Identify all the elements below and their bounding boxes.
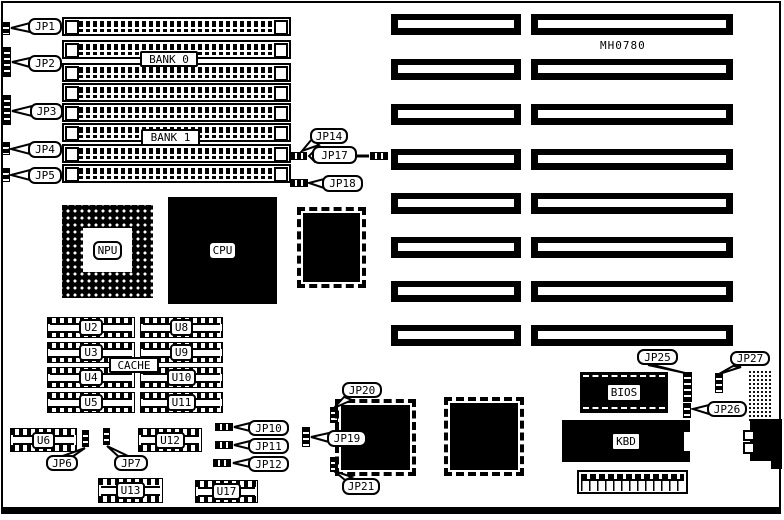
bios-label: BIOS	[606, 383, 643, 402]
expansion-slot	[531, 325, 733, 346]
connector-pin	[743, 430, 755, 441]
qfp-chip	[450, 403, 518, 470]
jp6-jumper-block	[82, 430, 89, 447]
chip-u2: U2	[47, 317, 135, 338]
npu-socket-window: NPU	[83, 228, 132, 272]
jp5-jumper-block	[2, 168, 10, 182]
jp4-jumper-block	[2, 142, 10, 155]
chip-u6: U6	[10, 428, 77, 452]
jp5-label: JP5	[28, 167, 62, 184]
expansion-slot	[391, 149, 521, 170]
expansion-slot	[531, 237, 733, 258]
jp25-label: JP25	[637, 349, 678, 365]
jp10-jumper-block	[215, 423, 233, 431]
chip-u8: U8	[140, 317, 223, 338]
npu-label: NPU	[93, 241, 123, 260]
cache-label: CACHE	[109, 357, 159, 373]
jp17-label: JP17	[312, 146, 357, 164]
jp1-jumper-block	[2, 22, 10, 35]
jp10-label: JP10	[248, 420, 289, 436]
jp17-jumper-block	[370, 152, 388, 160]
simm-socket	[62, 144, 291, 163]
bios-chip: BIOS	[580, 372, 668, 413]
jp26-jumper-block	[683, 403, 691, 418]
expansion-slot	[531, 149, 733, 170]
kbd-controller-chip: KBD	[562, 420, 690, 462]
jp3-label: JP3	[30, 103, 63, 120]
chip-u5: U5	[47, 392, 135, 413]
jp19-label: JP19	[327, 430, 367, 447]
jp12-jumper-block	[213, 459, 231, 467]
jp20-label: JP20	[342, 382, 382, 398]
bank0-label: BANK 0	[140, 51, 198, 67]
model-number: MH0780	[600, 39, 660, 52]
jp2-jumper-block	[3, 47, 11, 77]
expansion-slot	[391, 14, 521, 35]
jp14-jp17-jumper-block	[290, 152, 307, 160]
jp19-jumper-block	[302, 427, 310, 447]
jp3-jumper-block	[3, 95, 11, 125]
chip-u12: U12	[138, 428, 202, 452]
jp25-jumper-block	[683, 372, 692, 402]
jp27-label: JP27	[730, 351, 770, 366]
simm-socket	[62, 103, 291, 122]
jp18-label: JP18	[322, 175, 363, 192]
jp11-label: JP11	[248, 438, 289, 454]
expansion-slot	[531, 104, 733, 125]
expansion-slot	[531, 59, 733, 80]
expansion-slot	[391, 281, 521, 302]
simm-socket	[62, 83, 291, 102]
jp4-label: JP4	[28, 141, 62, 158]
jp1-label: JP1	[28, 18, 62, 35]
chip-u11: U11	[140, 392, 223, 413]
expansion-slot	[531, 14, 733, 35]
power-connector	[577, 470, 688, 494]
chip-u13: U13	[98, 478, 163, 503]
jp6-label: JP6	[46, 455, 78, 471]
jp12-label: JP12	[248, 456, 289, 472]
power-connector-pins-bottom	[581, 479, 684, 491]
expansion-slot	[531, 193, 733, 214]
motherboard-diagram: BANK 0 BANK 1 JP1 JP2 JP3 JP4 JP5 MH0780…	[0, 0, 784, 520]
jp18-jumper-block	[290, 179, 308, 187]
expansion-slot	[391, 237, 521, 258]
bank1-label: BANK 1	[141, 129, 200, 146]
jp26-label: JP26	[707, 401, 747, 417]
cpu-chip: CPU	[168, 197, 277, 304]
keyboard-connector-step	[771, 461, 782, 469]
expansion-slot	[391, 193, 521, 214]
simm-socket	[62, 17, 291, 36]
qfp-chip	[303, 213, 360, 282]
expansion-slot	[391, 325, 521, 346]
jp7-label: JP7	[114, 455, 148, 471]
npu-socket: NPU	[62, 205, 153, 298]
jp2-label: JP2	[28, 55, 62, 72]
expansion-slot	[391, 104, 521, 125]
jp11-jumper-block	[215, 441, 233, 449]
jp7-jumper-block	[103, 428, 110, 445]
kbd-label: KBD	[611, 432, 641, 451]
simm-socket	[62, 164, 291, 183]
jp14-label: JP14	[310, 128, 348, 144]
jp21-label: JP21	[342, 478, 380, 495]
chip-u17: U17	[195, 480, 258, 503]
cpu-label: CPU	[210, 243, 236, 258]
oscillator-component	[748, 370, 773, 422]
jp27-jumper-block	[715, 373, 723, 393]
connector-pin	[743, 442, 755, 454]
expansion-slot	[531, 281, 733, 302]
expansion-slot	[391, 59, 521, 80]
kbd-chip-notch	[684, 432, 692, 451]
